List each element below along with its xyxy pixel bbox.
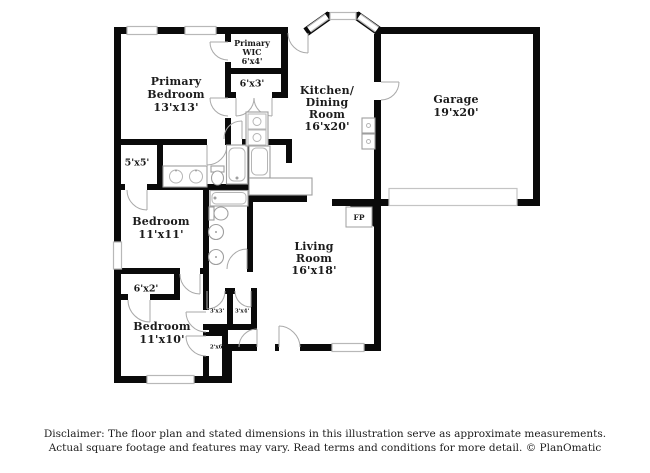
svg-text:3'x4': 3'x4'	[235, 309, 250, 315]
svg-text:6'x2': 6'x2'	[134, 284, 159, 295]
bath2-sinks	[209, 225, 224, 265]
window	[330, 13, 356, 20]
window	[147, 376, 194, 384]
svg-text:11'x11': 11'x11'	[138, 228, 183, 241]
closet-6x2-door	[128, 300, 150, 322]
disclaimer-line-1: Disclaimer: The floor plan and stated di…	[44, 428, 606, 440]
window	[332, 344, 364, 352]
garage-door	[389, 189, 517, 206]
svg-text:13'x13': 13'x13'	[153, 101, 198, 114]
disclaimer: Disclaimer: The floor plan and stated di…	[44, 428, 606, 454]
fireplace-label: FP	[354, 213, 365, 222]
wall-segment	[286, 139, 292, 163]
hall-bath-toilet	[211, 166, 224, 185]
wall-segment	[225, 34, 231, 42]
wall-segment	[281, 34, 288, 98]
svg-text:6'x4': 6'x4'	[242, 56, 263, 66]
hall-bath-door	[207, 145, 227, 165]
floor-plan: FP Primary Bedroom 13'x13' Primary WIC 6…	[0, 0, 650, 473]
garage-entry-door	[381, 82, 399, 100]
wall-segment	[203, 184, 209, 274]
wall-segment	[203, 288, 207, 294]
closet-2x6-door	[186, 336, 206, 356]
svg-text:Primary: Primary	[151, 75, 202, 88]
svg-text:6'x3': 6'x3'	[240, 79, 265, 90]
wall-segment	[228, 92, 236, 98]
room-label-living-room: Living Room 16'x18'	[291, 240, 336, 277]
kitchen-sink-counter	[246, 112, 268, 146]
closet-3x3-door	[207, 291, 225, 309]
svg-text:16'x18': 16'x18'	[291, 264, 336, 277]
room-label-garage: Garage 19'x20'	[433, 93, 478, 119]
svg-text:3'x3': 3'x3'	[210, 309, 225, 315]
bedroom2-door	[180, 274, 200, 294]
exterior-door	[288, 33, 308, 53]
floor-plan-page: FP Primary Bedroom 13'x13' Primary WIC 6…	[0, 0, 650, 473]
svg-text:Garage: Garage	[433, 93, 478, 106]
window	[185, 27, 216, 35]
hall-bath-vanity	[163, 166, 207, 187]
room-label-primary-bedroom: Primary Bedroom 13'x13'	[147, 75, 205, 114]
wall-segment	[203, 324, 257, 330]
hall-bathtub	[227, 145, 248, 184]
room-label-closet-3x3: 3'x3'	[210, 309, 225, 315]
wall-segment	[272, 92, 286, 98]
wall-segment	[203, 332, 209, 336]
svg-text:19'x20': 19'x20'	[433, 106, 478, 119]
wall-segment	[251, 288, 257, 330]
wall-segment	[275, 344, 279, 351]
wall-segment	[200, 268, 209, 274]
wall-segment	[114, 184, 125, 190]
svg-text:16'x20': 16'x20'	[304, 120, 349, 133]
wall-segment	[114, 27, 121, 383]
window	[127, 27, 157, 35]
wall-segment	[203, 356, 209, 376]
room-label-closet-5x5: 5'x5'	[125, 158, 150, 169]
room-label-bedroom-2: Bedroom 11'x11'	[132, 215, 190, 241]
disclaimer-line-2: Actual square footage and features may v…	[48, 442, 602, 454]
wall-segment	[227, 288, 233, 330]
wall-segment	[174, 268, 180, 300]
bath2-door	[227, 249, 247, 269]
svg-text:Bedroom: Bedroom	[132, 215, 190, 228]
wic-door	[210, 42, 228, 60]
room-label-bedroom-3: Bedroom 11'x10'	[133, 320, 191, 346]
svg-text:Bedroom: Bedroom	[133, 320, 191, 333]
room-label-primary-wic: Primary WIC 6'x4'	[234, 38, 270, 66]
closet-3x4-door	[235, 291, 251, 307]
wall-segment	[374, 34, 381, 82]
window	[114, 242, 122, 269]
wall-segment	[376, 27, 540, 34]
kitchen-appliances	[362, 118, 375, 149]
room-label-closet-3x4: 3'x4'	[235, 309, 250, 315]
wall-segment	[533, 27, 540, 206]
wall-segment	[248, 195, 307, 202]
room-label-primary-bath: 6'x3'	[240, 79, 265, 90]
wall-segment	[114, 294, 128, 300]
bath2-toilet	[209, 207, 228, 220]
wall-segment	[228, 68, 285, 74]
closet-5x5-door	[127, 190, 147, 210]
wall-segment	[157, 145, 163, 184]
svg-text:Bedroom: Bedroom	[147, 88, 205, 101]
primary-bedroom-door	[210, 98, 228, 116]
room-label-closet-6x2: 6'x2'	[134, 284, 159, 295]
room-label-kitchen-dining: Kitchen/ Dining Room 16'x20'	[300, 84, 355, 133]
bath2-bathtub	[210, 191, 248, 207]
room-label-closet-2x6: 2'x6'	[210, 345, 225, 351]
wall-segment	[114, 139, 207, 145]
svg-text:2'x6': 2'x6'	[210, 345, 225, 351]
svg-text:11'x10': 11'x10'	[139, 333, 184, 346]
kitchen-counter	[249, 146, 312, 195]
front-door	[279, 326, 300, 347]
wall-segment	[114, 268, 180, 274]
svg-text:5'x5': 5'x5'	[125, 158, 150, 169]
wall-segment	[222, 330, 228, 376]
